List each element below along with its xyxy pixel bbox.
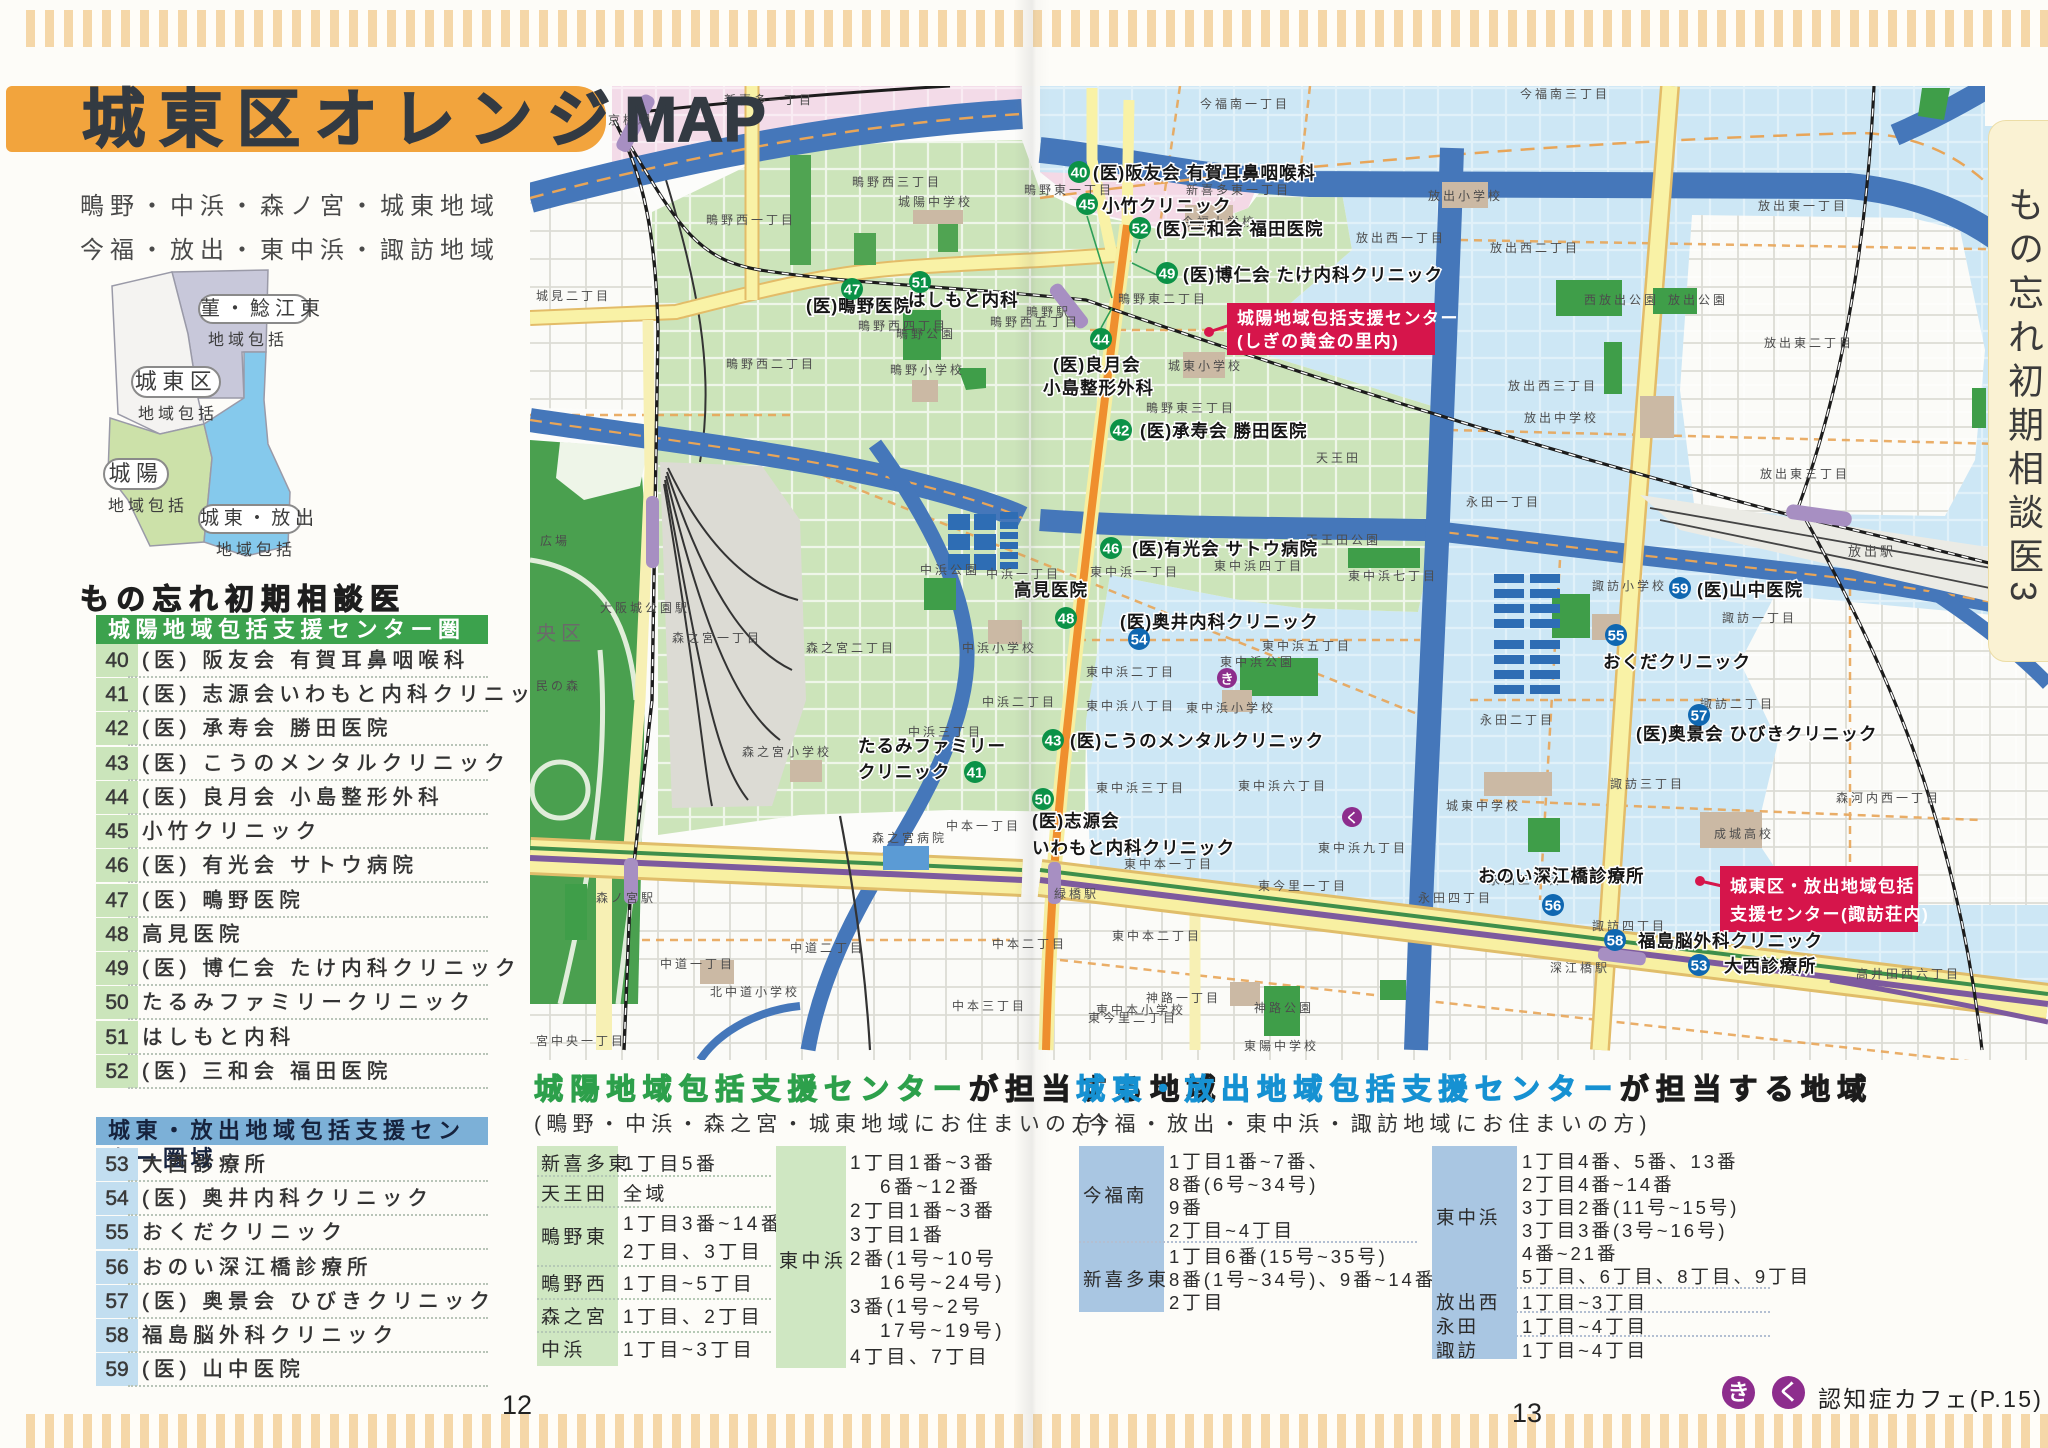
svg-text:高井田西六丁目: 高井田西六丁目 [1856, 966, 1961, 981]
svg-text:森之宮一丁目: 森之宮一丁目 [672, 630, 762, 645]
svg-text:森之宮病院: 森之宮病院 [872, 830, 947, 845]
svg-text:宮中央一丁目: 宮中央一丁目 [536, 1033, 626, 1048]
svg-text:57: 57 [1691, 708, 1708, 725]
svg-text:大西診療所: 大西診療所 [1724, 956, 1817, 976]
svg-text:東中浜六丁目: 東中浜六丁目 [1238, 778, 1328, 793]
svg-text:放出小学校: 放出小学校 [1428, 188, 1503, 203]
svg-text:東中浜九丁目: 東中浜九丁目 [1318, 840, 1408, 855]
svg-text:新喜多東一丁目: 新喜多東一丁目 [1186, 182, 1291, 197]
svg-text:緑橋駅: 緑橋駅 [1054, 886, 1099, 901]
svg-text:東今里一丁目: 東今里一丁目 [1258, 878, 1348, 893]
svg-text:東中本二丁目: 東中本二丁目 [1112, 928, 1202, 943]
svg-text:(医)承寿会 勝田医院: (医)承寿会 勝田医院 [1140, 421, 1308, 441]
svg-text:福島脳外科クリニック: 福島脳外科クリニック [1637, 931, 1823, 951]
svg-text:民の森: 民の森 [536, 678, 581, 693]
svg-text:森之宮二丁目: 森之宮二丁目 [806, 640, 896, 655]
svg-text:放出東三丁目: 放出東三丁目 [1760, 466, 1850, 481]
svg-text:大阪城公園駅: 大阪城公園駅 [600, 601, 690, 615]
svg-text:40: 40 [1071, 165, 1088, 182]
svg-text:47: 47 [844, 282, 861, 299]
svg-text:今福南一丁目: 今福南一丁目 [1200, 96, 1290, 111]
svg-text:(しぎの黄金の里内): (しぎの黄金の里内) [1237, 331, 1399, 351]
svg-text:永田一丁目: 永田一丁目 [1466, 495, 1541, 509]
svg-text:東中浜五丁目: 東中浜五丁目 [1262, 638, 1352, 653]
svg-text:央区: 央区 [536, 622, 586, 645]
svg-text:(医)奥景会 ひびきクリニック: (医)奥景会 ひびきクリニック [1636, 724, 1878, 744]
svg-text:諏訪小学校: 諏訪小学校 [1592, 578, 1667, 593]
svg-text:58: 58 [1607, 933, 1624, 950]
svg-text:(医)奥井内科クリニック: (医)奥井内科クリニック [1120, 612, 1319, 632]
svg-text:小竹クリニック: 小竹クリニック [1102, 196, 1232, 216]
svg-text:45: 45 [1079, 197, 1096, 214]
svg-text:東中浜七丁目: 東中浜七丁目 [1348, 568, 1438, 583]
svg-text:54: 54 [1131, 632, 1148, 649]
svg-text:放出西一丁目: 放出西一丁目 [1356, 230, 1446, 245]
svg-text:中道二丁目: 中道二丁目 [790, 940, 865, 955]
svg-text:55: 55 [1608, 628, 1625, 645]
svg-text:鴫野西三丁目: 鴫野西三丁目 [852, 175, 942, 189]
svg-text:諏訪三丁目: 諏訪三丁目 [1610, 776, 1685, 791]
svg-text:小島整形外科: 小島整形外科 [1043, 378, 1154, 398]
svg-text:中本一丁目: 中本一丁目 [946, 818, 1021, 833]
svg-text:放出西三丁目: 放出西三丁目 [1508, 378, 1598, 393]
svg-text:東中浜公園: 東中浜公園 [1220, 654, 1295, 669]
svg-text:城見二丁目: 城見二丁目 [536, 289, 611, 303]
svg-text:(医)博仁会 たけ内科クリニック: (医)博仁会 たけ内科クリニック [1183, 265, 1443, 285]
svg-text:44: 44 [1093, 332, 1110, 349]
svg-text:永田四丁目: 永田四丁目 [1418, 891, 1493, 905]
svg-text:42: 42 [1113, 423, 1130, 440]
svg-text:東中本小学校: 東中本小学校 [1096, 1002, 1186, 1017]
svg-text:東中浜小学校: 東中浜小学校 [1186, 700, 1276, 715]
svg-text:放出駅: 放出駅 [1848, 544, 1896, 559]
svg-text:(医)有光会 サトウ病院: (医)有光会 サトウ病院 [1132, 539, 1318, 559]
svg-text:森之宮小学校: 森之宮小学校 [742, 744, 832, 759]
svg-text:天王田: 天王田 [1316, 451, 1361, 465]
svg-text:き: き [1220, 672, 1233, 687]
svg-text:鴫野西二丁目: 鴫野西二丁目 [726, 357, 816, 371]
svg-text:49: 49 [1159, 266, 1176, 283]
svg-text:いわもと内科クリニック: いわもと内科クリニック [1032, 838, 1235, 858]
svg-text:城東小学校: 城東小学校 [1168, 358, 1243, 373]
svg-text:放出公園: 放出公園 [1668, 292, 1728, 307]
svg-text:諏訪一丁目: 諏訪一丁目 [1722, 610, 1797, 625]
svg-text:クリニック: クリニック [858, 762, 951, 782]
svg-text:(医)山中医院: (医)山中医院 [1697, 580, 1803, 600]
svg-text:放出西二丁目: 放出西二丁目 [1490, 240, 1580, 255]
svg-text:51: 51 [912, 275, 929, 292]
svg-text:森ノ宮駅: 森ノ宮駅 [596, 890, 656, 905]
svg-text:59: 59 [1672, 581, 1689, 598]
svg-text:北中道小学校: 北中道小学校 [710, 984, 800, 999]
svg-text:諏訪二丁目: 諏訪二丁目 [1700, 696, 1775, 711]
svg-text:東中浜八丁目: 東中浜八丁目 [1086, 698, 1176, 713]
svg-text:(医)こうのメンタルクリニック: (医)こうのメンタルクリニック [1070, 731, 1324, 751]
svg-text:今福南三丁目: 今福南三丁目 [1520, 86, 1610, 101]
svg-text:52: 52 [1132, 221, 1149, 238]
svg-text:たるみファミリー: たるみファミリー [858, 736, 1006, 756]
svg-text:東中浜一丁目: 東中浜一丁目 [1090, 564, 1180, 579]
svg-text:おのい深江橋診療所: おのい深江橋診療所 [1478, 866, 1645, 886]
svg-text:(医)三和会 福田医院: (医)三和会 福田医院 [1156, 219, 1324, 239]
svg-text:(医)良月会: (医)良月会 [1053, 355, 1141, 375]
svg-text:く: く [1345, 811, 1358, 826]
svg-text:はしもと内科: はしもと内科 [908, 290, 1019, 310]
svg-text:53: 53 [1691, 958, 1708, 975]
svg-text:41: 41 [967, 765, 984, 782]
svg-text:東中浜三丁目: 東中浜三丁目 [1096, 780, 1186, 795]
svg-text:56: 56 [1545, 898, 1562, 915]
svg-text:成城高校: 成城高校 [1714, 826, 1774, 841]
svg-text:西放出公園: 西放出公園 [1584, 292, 1659, 307]
svg-text:支援センター(諏訪荘内): 支援センター(諏訪荘内) [1730, 904, 1929, 924]
svg-text:広場: 広場 [540, 534, 570, 548]
svg-text:鴫野東二丁目: 鴫野東二丁目 [1118, 292, 1208, 306]
svg-text:東中浜四丁目: 東中浜四丁目 [1214, 558, 1304, 573]
svg-text:おくだクリニック: おくだクリニック [1603, 652, 1751, 672]
svg-text:放出中学校: 放出中学校 [1524, 410, 1599, 425]
svg-text:永田二丁目: 永田二丁目 [1480, 713, 1555, 727]
svg-text:中浜公園: 中浜公園 [920, 562, 980, 577]
svg-text:東中本一丁目: 東中本一丁目 [1124, 856, 1214, 871]
svg-text:(医)阪友会 有賀耳鼻咽喉科: (医)阪友会 有賀耳鼻咽喉科 [1093, 163, 1316, 183]
svg-text:中道一丁目: 中道一丁目 [660, 956, 735, 971]
svg-text:放出東二丁目: 放出東二丁目 [1764, 335, 1854, 350]
svg-text:城陽地域包括支援センター: 城陽地域包括支援センター [1237, 308, 1459, 328]
svg-text:神路公園: 神路公園 [1254, 1000, 1314, 1015]
svg-text:46: 46 [1103, 541, 1120, 558]
svg-text:城陽中学校: 城陽中学校 [898, 194, 973, 209]
svg-text:鴫野小学校: 鴫野小学校 [890, 362, 965, 377]
svg-text:城東区・放出地域包括: 城東区・放出地域包括 [1730, 876, 1915, 896]
svg-text:深江橋駅: 深江橋駅 [1550, 961, 1610, 975]
svg-text:東陽中学校: 東陽中学校 [1244, 1038, 1319, 1053]
svg-text:鴫野公園: 鴫野公園 [896, 327, 956, 341]
svg-text:東中浜二丁目: 東中浜二丁目 [1086, 664, 1176, 679]
svg-text:森河内西一丁目: 森河内西一丁目 [1836, 790, 1941, 805]
svg-text:鴫野東三丁目: 鴫野東三丁目 [1146, 401, 1236, 415]
svg-text:放出東一丁目: 放出東一丁目 [1758, 198, 1848, 213]
svg-text:(医)鴫野医院: (医)鴫野医院 [806, 296, 912, 316]
svg-text:鴫野西一丁目: 鴫野西一丁目 [706, 213, 796, 227]
svg-text:48: 48 [1058, 611, 1075, 628]
svg-text:城東中学校: 城東中学校 [1446, 798, 1521, 813]
